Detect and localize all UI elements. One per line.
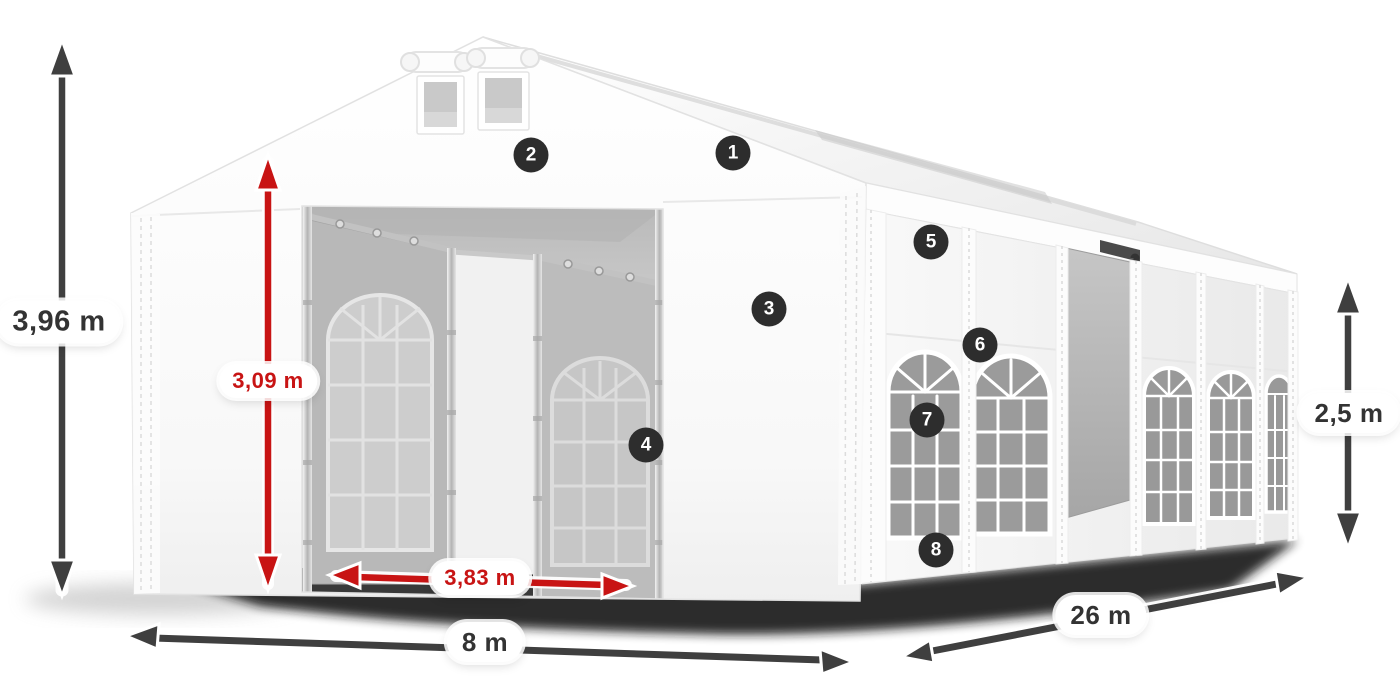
- dimension-label-total-height: 3,96 m: [0, 301, 121, 344]
- marker-4[interactable]: 4: [629, 428, 664, 463]
- marker-1[interactable]: 1: [716, 136, 751, 171]
- tent-dimensions-diagram: 3,96 m 3,09 m 3,83 m 8 m 26 m 2,5 m 1 2 …: [0, 0, 1400, 700]
- marker-3[interactable]: 3: [752, 292, 787, 327]
- marker-8[interactable]: 8: [919, 533, 954, 568]
- dimension-label-entrance-width: 3,83 m: [431, 561, 529, 595]
- dimension-label-side-height: 2,5 m: [1300, 393, 1399, 433]
- dimension-label-side-length: 26 m: [1055, 595, 1146, 635]
- marker-6[interactable]: 6: [963, 328, 998, 363]
- marker-2[interactable]: 2: [514, 138, 549, 173]
- entrance-door-left: [310, 220, 450, 584]
- dimension-label-front-width: 8 m: [447, 622, 523, 662]
- marker-5[interactable]: 5: [914, 225, 949, 260]
- dimension-label-entrance-height: 3,09 m: [219, 364, 317, 398]
- tent-illustration: [0, 0, 1400, 700]
- marker-7[interactable]: 7: [910, 403, 945, 438]
- side-door-opening: [1066, 240, 1140, 518]
- front-opening-interior: [302, 206, 664, 600]
